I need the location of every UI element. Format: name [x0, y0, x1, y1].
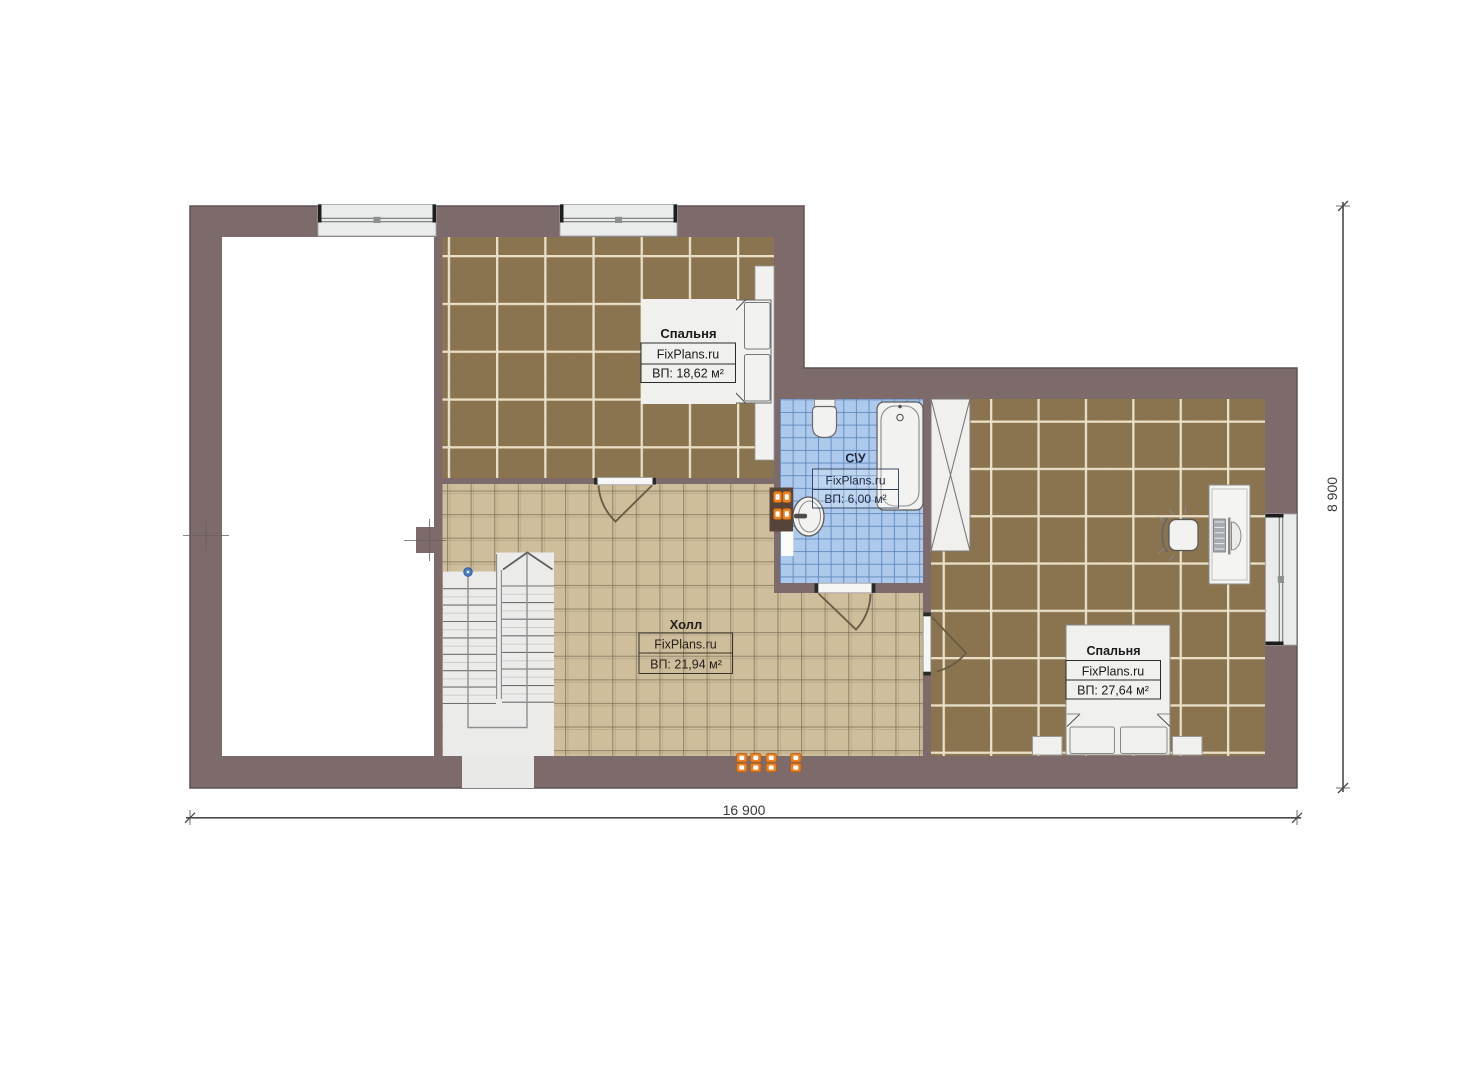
- svg-text:8 900: 8 900: [1324, 477, 1340, 512]
- svg-text:Спальня: Спальня: [660, 326, 716, 341]
- svg-text:FixPlans.ru: FixPlans.ru: [657, 348, 720, 362]
- svg-text:С\У: С\У: [845, 452, 866, 466]
- svg-text:16 900: 16 900: [723, 802, 766, 818]
- svg-text:Спальня: Спальня: [1087, 644, 1141, 658]
- svg-text:Холл: Холл: [670, 617, 703, 632]
- svg-text:ВП: 18,62 м²: ВП: 18,62 м²: [652, 367, 724, 381]
- svg-text:FixPlans.ru: FixPlans.ru: [654, 638, 717, 652]
- svg-text:ВП: 6,00 м²: ВП: 6,00 м²: [824, 492, 886, 506]
- svg-text:ВП: 21,94 м²: ВП: 21,94 м²: [650, 658, 722, 672]
- svg-text:FixPlans.ru: FixPlans.ru: [825, 474, 885, 488]
- svg-text:FixPlans.ru: FixPlans.ru: [1082, 665, 1145, 679]
- svg-text:ВП: 27,64 м²: ВП: 27,64 м²: [1077, 684, 1149, 698]
